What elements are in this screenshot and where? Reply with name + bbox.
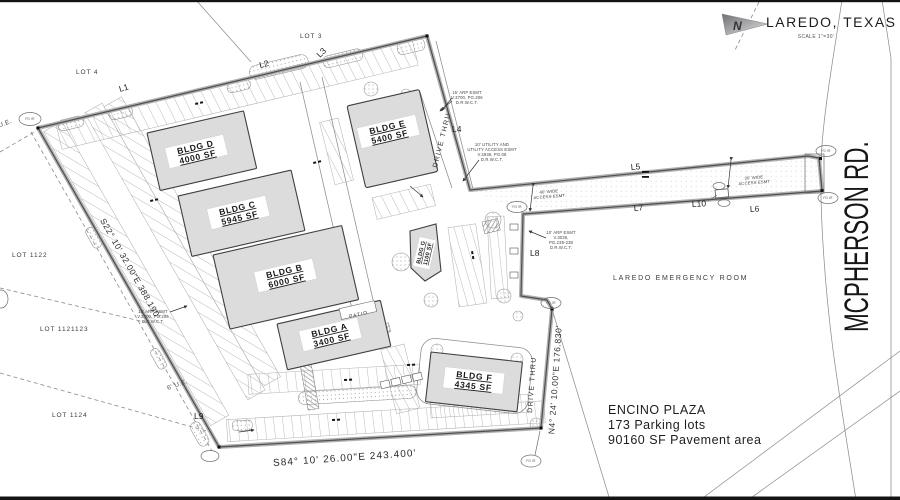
esmt-arp10-4: D.R.W.C.T. — [550, 245, 572, 250]
parking-row-above-g — [372, 184, 435, 219]
road-diagonal-1 — [700, 351, 900, 500]
plaza-parking: 173 Parking lots — [608, 418, 706, 432]
fd-ir-label: FD IR — [512, 205, 522, 209]
parking-row-east-of-g — [448, 224, 487, 307]
summary-block: ENCINO PLAZA 173 Parking lots 90160 SF P… — [608, 403, 761, 447]
bearing-south: S84° 10' 26.00"E 243.400' — [273, 448, 417, 469]
emergency-room-label: LAREDO EMERGENCY ROOM — [613, 275, 748, 282]
line-label-l9: L9 — [194, 411, 204, 421]
site-plan-sheet: FD IR FD IR FD IR FD IR FD IR FD IR BLDG… — [0, 0, 900, 500]
esmt-arp15-ne-3: D.R.W.C.T. — [456, 100, 478, 105]
line-label-l10: L10 — [692, 198, 707, 209]
north-letter: N — [733, 19, 742, 33]
lot-line-1122 — [0, 288, 149, 323]
fd-ir-marker — [201, 451, 219, 462]
lot-3-label: LOT 3 — [300, 33, 322, 40]
fd-ir-label: FD IR — [823, 196, 833, 200]
scale-note: SCALE 1"=30' — [798, 34, 835, 40]
parking-row-west-of-e — [320, 118, 354, 185]
sheet-border-bottom — [0, 497, 900, 500]
city-title: LAREDO, TEXAS — [766, 14, 897, 30]
road-name-mcpherson: MCPHERSON RD. — [838, 141, 876, 332]
line-label-l1: L1 — [118, 82, 130, 94]
ue-dashed-top — [0, 131, 36, 152]
line-label-l7: L7 — [633, 202, 644, 213]
line-label-l4: L4 — [452, 124, 462, 134]
fd-ir-label: FD IR — [821, 149, 831, 153]
site-plan-drawing: FD IR FD IR FD IR FD IR FD IR FD IR BLDG… — [0, 0, 900, 500]
lot-1122-label: LOT 1122 — [12, 252, 48, 259]
plaza-name: ENCINO PLAZA — [608, 403, 706, 417]
line-label-l8: L8 — [530, 248, 540, 258]
lot-division-line — [196, 0, 251, 62]
fd-ir-label: FD IR — [25, 117, 35, 121]
curve-marker-west — [0, 290, 8, 308]
lot-1121123-label: LOT 1121123 — [40, 326, 89, 333]
utility-boxes — [510, 224, 518, 278]
line-label-l2: L2 — [258, 58, 270, 70]
l10-notch — [715, 189, 729, 198]
plaza-pavement: 90160 SF Pavement area — [608, 433, 761, 447]
line-label-l5: L5 — [630, 161, 641, 172]
line-label-l6: L6 — [750, 204, 760, 214]
esmt-utility-4: D.R.W.C.T. — [481, 157, 503, 162]
sheet-border-top — [0, 0, 900, 2]
north-arrow-icon — [722, 14, 768, 35]
lot-1124-label: LOT 1124 — [52, 412, 88, 419]
lot-4-label: LOT 4 — [76, 69, 98, 76]
fd-ir-label: FD IR — [526, 459, 536, 463]
ue-label-north: 6' U.E. — [0, 118, 13, 132]
esmt-arp15-w-3: D.R.W.C.T. — [142, 319, 164, 324]
fd-ir-label: FD IR — [546, 301, 556, 305]
title-block: N LAREDO, TEXAS SCALE 1"=30' — [722, 14, 897, 40]
